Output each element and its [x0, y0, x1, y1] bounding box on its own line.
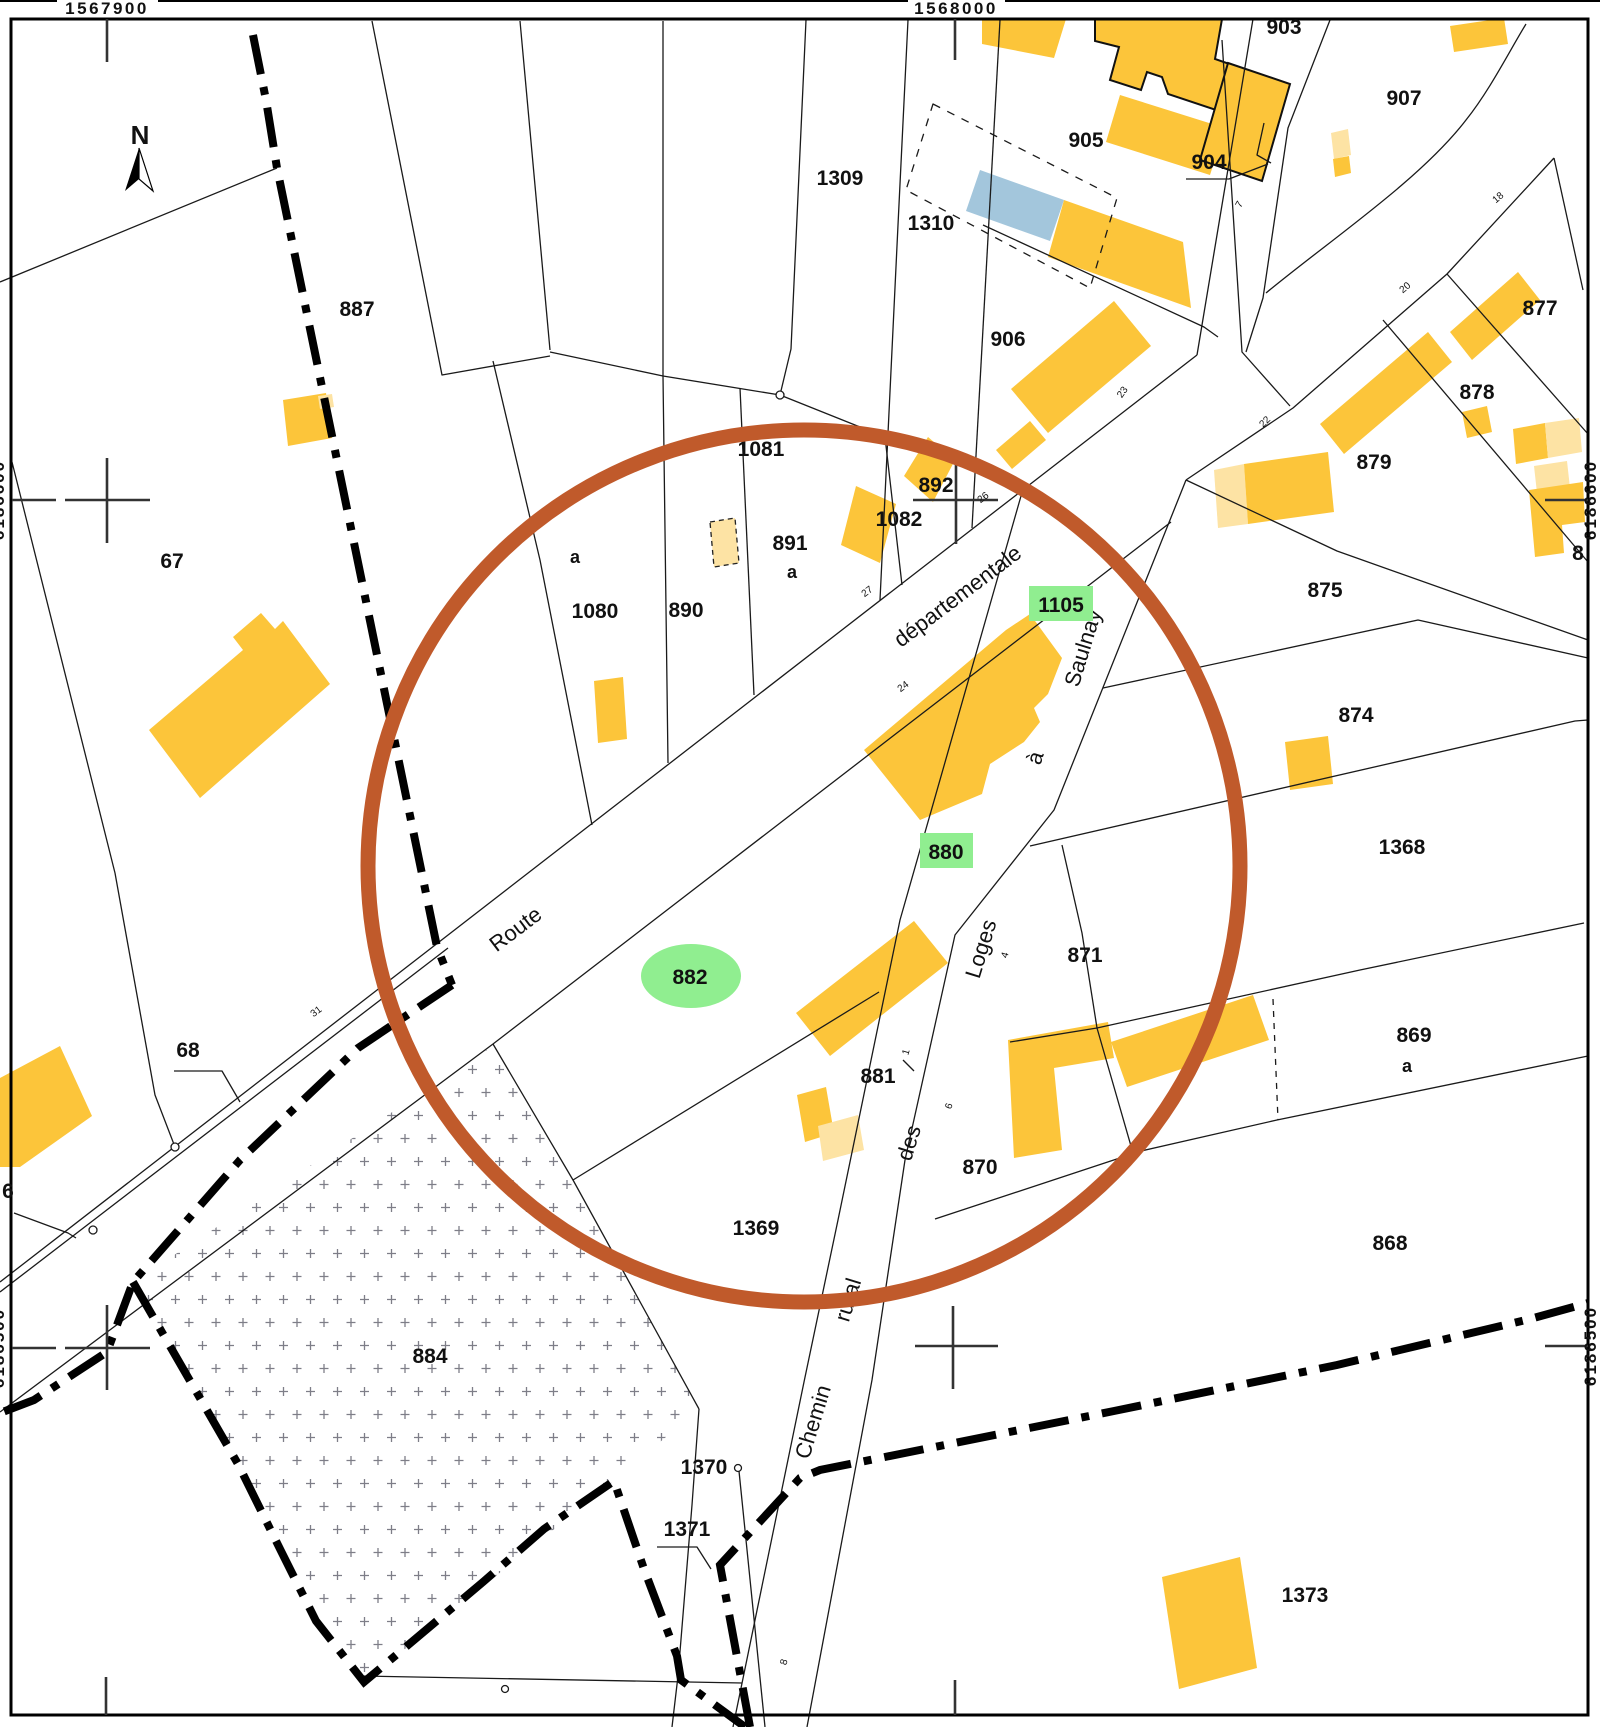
svg-text:a: a: [570, 547, 581, 567]
svg-text:887: 887: [339, 298, 374, 321]
svg-text:905: 905: [1068, 129, 1103, 152]
svg-text:880: 880: [928, 841, 963, 864]
svg-text:1309: 1309: [817, 167, 864, 190]
svg-text:6186500: 6186500: [1581, 1306, 1600, 1386]
svg-text:1310: 1310: [908, 212, 955, 235]
svg-text:N: N: [131, 120, 150, 150]
svg-text:1368: 1368: [1379, 836, 1426, 859]
svg-text:1371: 1371: [664, 1518, 711, 1541]
svg-text:879: 879: [1356, 451, 1391, 474]
svg-text:871: 871: [1067, 944, 1102, 967]
svg-text:6186600: 6186600: [1581, 460, 1600, 540]
svg-text:874: 874: [1338, 704, 1373, 727]
svg-text:1082: 1082: [876, 508, 923, 531]
svg-text:6186500: 6186500: [0, 1308, 8, 1388]
svg-text:1370: 1370: [681, 1456, 728, 1479]
svg-text:884: 884: [412, 1345, 447, 1368]
svg-text:1080: 1080: [572, 600, 619, 623]
svg-text:891: 891: [772, 532, 807, 555]
svg-text:1568000: 1568000: [914, 0, 998, 18]
svg-text:870: 870: [962, 1156, 997, 1179]
svg-text:1369: 1369: [733, 1217, 780, 1240]
svg-text:868: 868: [1372, 1232, 1407, 1255]
svg-text:877: 877: [1522, 297, 1557, 320]
svg-text:875: 875: [1307, 579, 1342, 602]
svg-text:903: 903: [1266, 16, 1301, 39]
svg-text:881: 881: [860, 1065, 895, 1088]
svg-text:68: 68: [176, 1039, 200, 1062]
svg-text:878: 878: [1459, 381, 1494, 404]
svg-text:869: 869: [1396, 1024, 1431, 1047]
svg-text:a: a: [787, 562, 798, 582]
svg-text:907: 907: [1386, 87, 1421, 110]
svg-text:1105: 1105: [1038, 594, 1084, 617]
svg-text:892: 892: [918, 474, 953, 497]
svg-text:1373: 1373: [1282, 1584, 1329, 1607]
svg-text:6186600: 6186600: [0, 460, 8, 540]
svg-text:a: a: [1402, 1056, 1413, 1076]
svg-text:6: 6: [2, 1180, 14, 1203]
svg-text:8: 8: [1572, 542, 1584, 565]
svg-text:882: 882: [672, 966, 707, 989]
svg-text:904: 904: [1191, 151, 1226, 174]
svg-text:890: 890: [668, 599, 703, 622]
svg-text:67: 67: [160, 550, 183, 573]
svg-text:1567900: 1567900: [65, 0, 149, 18]
svg-text:906: 906: [990, 328, 1025, 351]
